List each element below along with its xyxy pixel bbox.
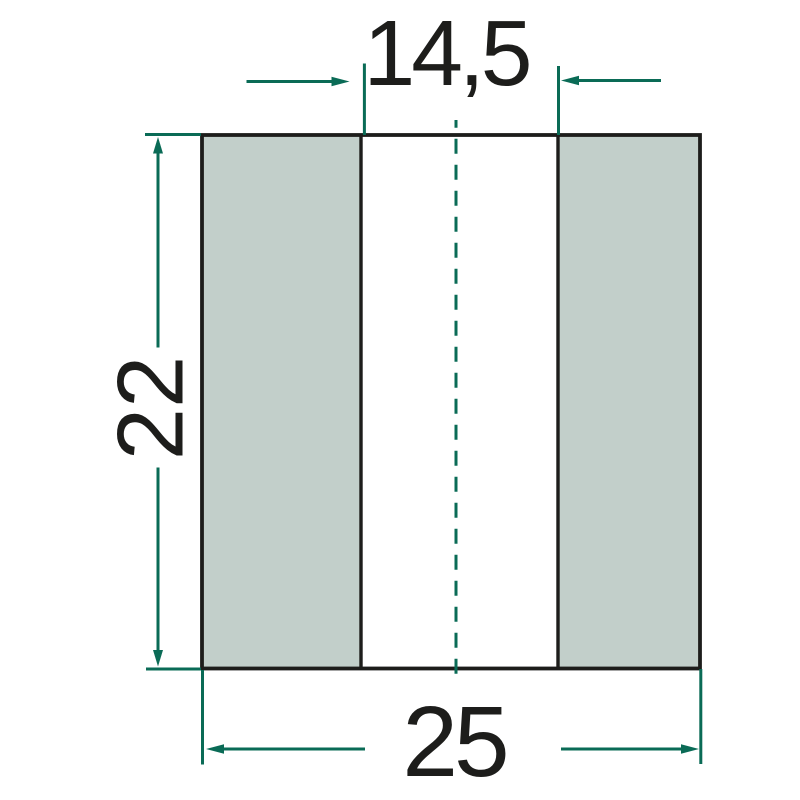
svg-text:22: 22: [98, 356, 203, 461]
svg-text:25: 25: [402, 686, 506, 798]
svg-text:14,5: 14,5: [363, 1, 528, 105]
